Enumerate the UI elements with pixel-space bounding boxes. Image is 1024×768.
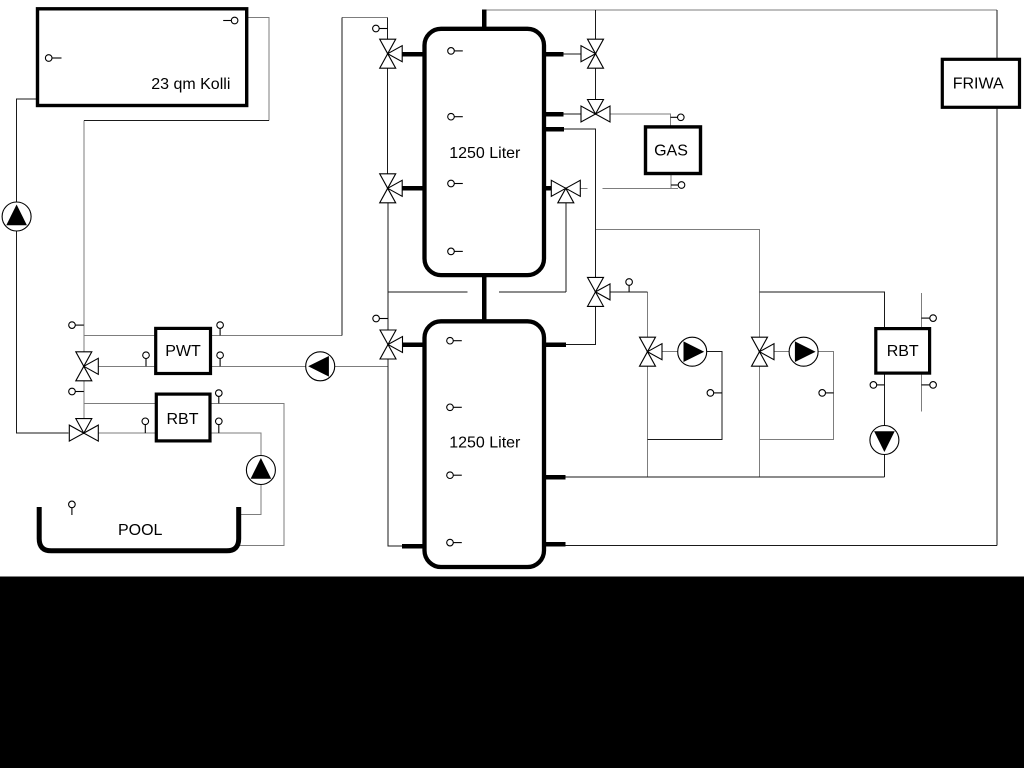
svg-text:RBT: RBT bbox=[167, 411, 199, 428]
svg-text:GAS: GAS bbox=[654, 143, 688, 160]
svg-text:POOL: POOL bbox=[118, 522, 163, 539]
svg-text:PWT: PWT bbox=[165, 343, 201, 360]
svg-text:23 qm Kolli: 23 qm Kolli bbox=[151, 76, 230, 93]
svg-text:1250 Liter: 1250 Liter bbox=[449, 145, 521, 162]
svg-text:FRIWA: FRIWA bbox=[953, 76, 1004, 93]
svg-text:RBT: RBT bbox=[887, 343, 919, 360]
svg-text:1250 Liter: 1250 Liter bbox=[449, 435, 521, 452]
